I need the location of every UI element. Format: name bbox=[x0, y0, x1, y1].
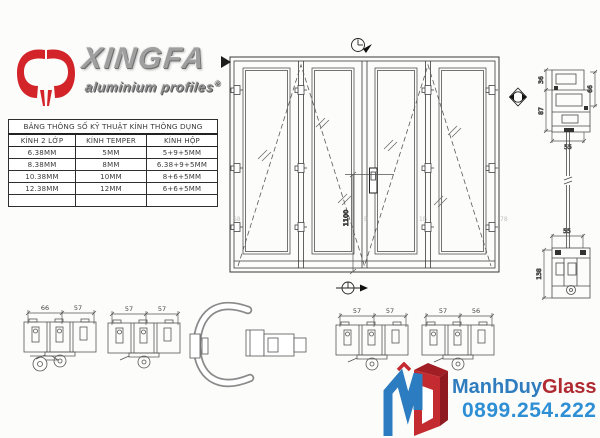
spec-row-empty bbox=[9, 195, 218, 207]
spec-col-header-3: KÍNH HỘP bbox=[147, 134, 218, 147]
spec-cell: 6.38+9+5MM bbox=[147, 159, 218, 171]
spec-col-header-1: KÍNH 2 LỚP bbox=[9, 134, 76, 147]
spec-row: 12.38MM 12MM 6+6+5MM bbox=[9, 183, 218, 195]
dim-plan4-b: 56 bbox=[472, 307, 480, 315]
plan-section-3: 57 57 bbox=[336, 307, 408, 370]
dim-sill-55: 55 bbox=[563, 228, 571, 235]
footer-phone-number: 0899.254.222 bbox=[462, 399, 596, 423]
spec-row: 6.38MM 5MM 5+9+5MM bbox=[9, 147, 218, 159]
door-handle bbox=[345, 168, 394, 193]
handle-height-dim-label: 1100 bbox=[342, 210, 350, 227]
head-section-detail: 36 87 66 55 bbox=[538, 68, 597, 151]
spec-cell: 5+9+5MM bbox=[147, 147, 218, 159]
dim-plan2-b: 57 bbox=[158, 305, 166, 313]
dim-sill-138: 138 bbox=[536, 268, 543, 280]
dim-plan1-a: 66 bbox=[41, 304, 49, 312]
registered-mark: ® bbox=[214, 79, 221, 88]
dim-plan3-a: 57 bbox=[353, 307, 361, 315]
spec-cell: 10.38MM bbox=[9, 171, 76, 183]
faint-marks: S8 B 1B 78 bbox=[233, 216, 508, 223]
manhduy-logo-icon bbox=[380, 362, 450, 438]
fold-direction-lines bbox=[238, 65, 491, 266]
spec-cell: 8+6+5MM bbox=[147, 171, 218, 183]
footer-brand-part2: Glass bbox=[542, 376, 596, 398]
section-symbol-bottom bbox=[336, 282, 368, 294]
sill-section-detail: 55 138 bbox=[536, 228, 590, 300]
spec-cell: 8.38MM bbox=[9, 159, 76, 171]
spec-row: 8.38MM 8MM 6.38+9+5MM bbox=[9, 159, 218, 171]
spec-col-header-2: KÍNH TEMPER bbox=[76, 134, 147, 147]
dim-head-87: 87 bbox=[538, 107, 545, 115]
svg-text:S8: S8 bbox=[233, 216, 241, 223]
dim-plan4-a: 57 bbox=[439, 307, 447, 315]
dim-head-55: 55 bbox=[564, 144, 572, 151]
brand-tagline: aluminium profiles® bbox=[84, 79, 221, 95]
spec-table-title: BẢNG THÔNG SỐ KỸ THUẬT KÍNH THÔNG DỤNG bbox=[9, 120, 218, 135]
hinge-marks bbox=[231, 86, 498, 232]
door-elevation: 1100 S8 B 1B 78 bbox=[221, 39, 527, 295]
dim-head-36: 36 bbox=[538, 76, 545, 84]
xingfa-logo-icon bbox=[14, 46, 78, 108]
spec-cell: 6+6+5MM bbox=[147, 183, 218, 195]
dim-plan3-b: 57 bbox=[386, 307, 394, 315]
plan-section-2: 57 57 bbox=[108, 305, 180, 368]
handle-plan-detail bbox=[190, 306, 306, 383]
drawing-sheet: 1100 S8 B 1B 78 bbox=[0, 0, 600, 438]
dim-plan2-a: 57 bbox=[125, 305, 133, 313]
svg-text:78: 78 bbox=[500, 216, 508, 223]
footer-brand-name: ManhDuyGlass bbox=[452, 376, 596, 399]
footer-brand-part1: ManhDuy bbox=[452, 376, 542, 398]
spec-cell: 8MM bbox=[76, 159, 147, 171]
section-symbol-top bbox=[352, 39, 373, 54]
svg-text:B: B bbox=[364, 216, 368, 223]
spec-cell: 12.38MM bbox=[9, 183, 76, 195]
svg-text:1B: 1B bbox=[419, 216, 427, 223]
spec-cell: 5MM bbox=[76, 147, 147, 159]
dim-plan1-b: 57 bbox=[74, 304, 82, 312]
spec-cell: 10MM bbox=[76, 171, 147, 183]
spec-cell: 12MM bbox=[76, 183, 147, 195]
plan-section-1: 66 57 bbox=[24, 304, 96, 371]
plan-section-4: 57 56 bbox=[422, 307, 494, 370]
glass-spec-table: BẢNG THÔNG SỐ KỸ THUẬT KÍNH THÔNG DỤNG K… bbox=[8, 119, 218, 207]
brand-name: XINGFA bbox=[80, 42, 207, 76]
spec-cell: 6.38MM bbox=[9, 147, 76, 159]
section-symbol-right bbox=[510, 88, 527, 106]
spec-row: 10.38MM 10MM 8+6+5MM bbox=[9, 171, 218, 183]
brand-tagline-text: aluminium profiles bbox=[84, 80, 215, 95]
dim-head-66: 66 bbox=[587, 85, 594, 93]
